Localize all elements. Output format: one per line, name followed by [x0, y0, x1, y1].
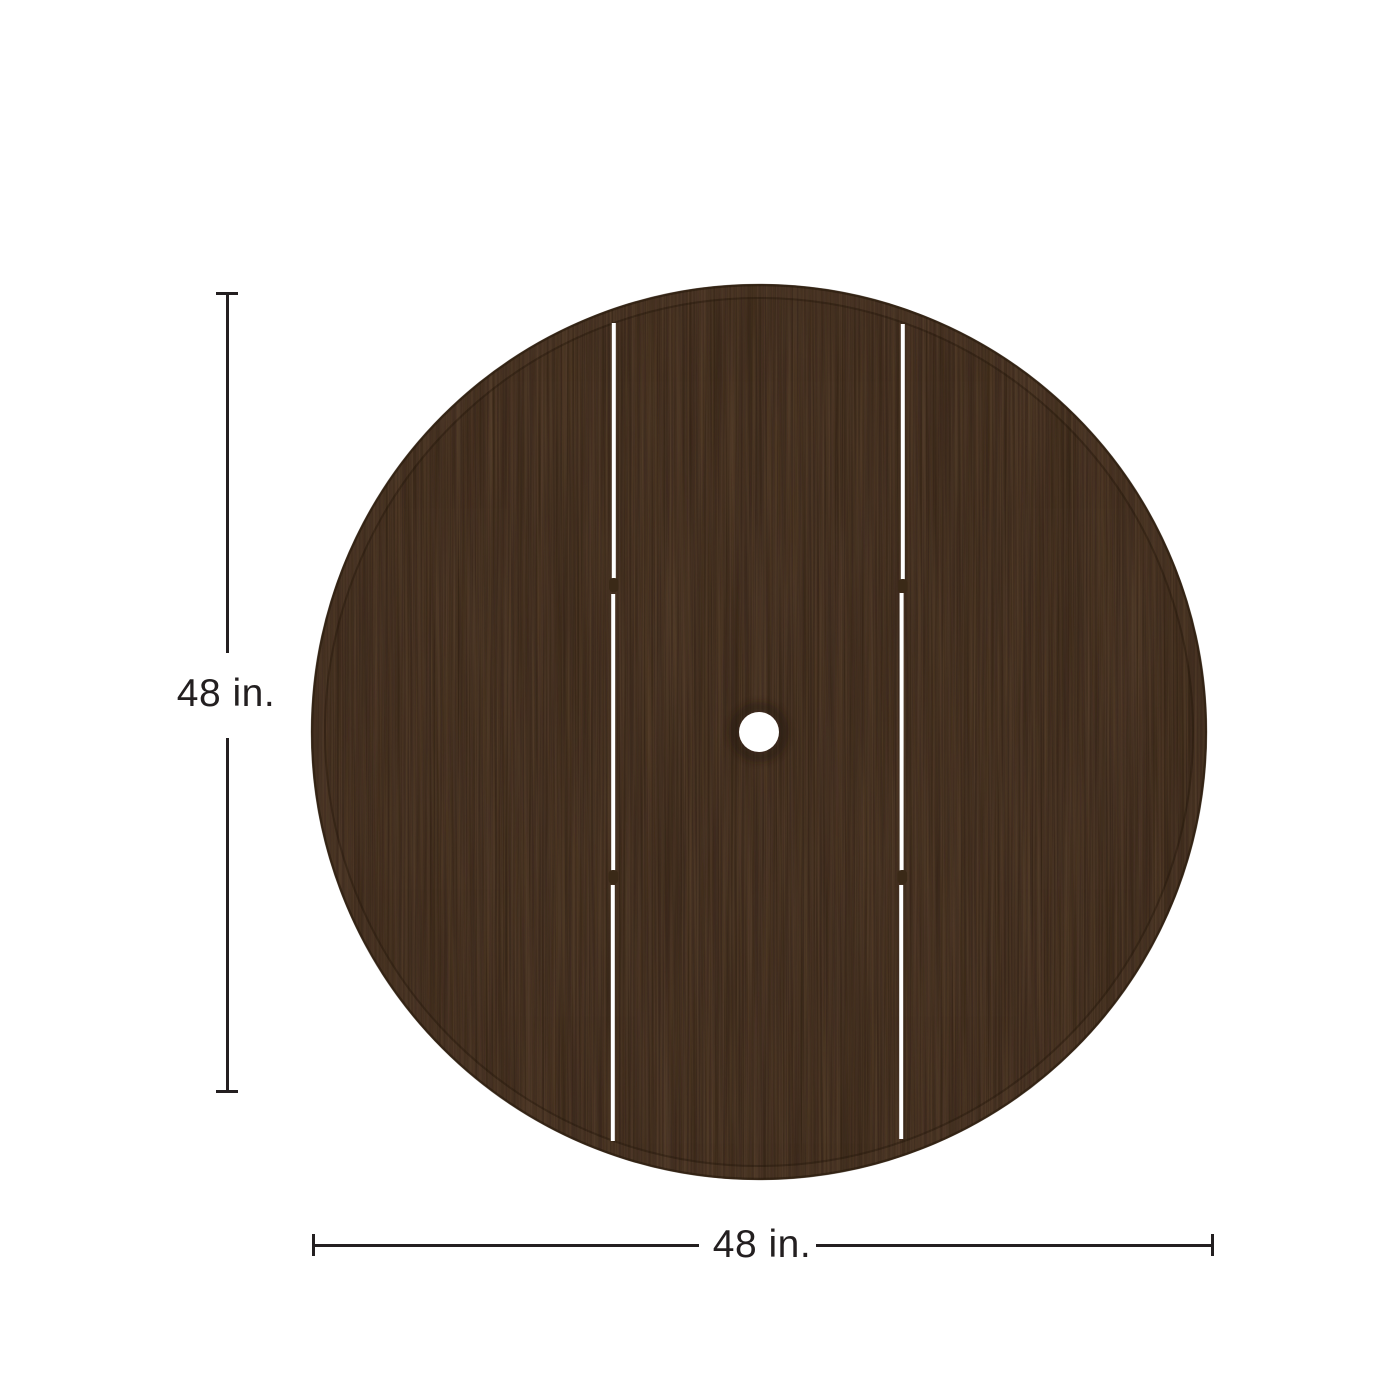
plank-gap-right-upper [901, 324, 905, 581]
plank-gap-left-lower [611, 885, 615, 1141]
plank-joint-notch [898, 579, 908, 593]
width-dimension-line-right [816, 1244, 1213, 1247]
plank-gap-right-lower [899, 885, 903, 1139]
plank-joint-notch [898, 870, 908, 884]
umbrella-hole [734, 707, 784, 757]
plank-joint-notch [609, 578, 619, 592]
height-dimension-label: 48 in. [141, 669, 311, 719]
width-dimension-right-cap [1211, 1234, 1214, 1256]
plank-gap-right-middle [900, 593, 904, 872]
height-dimension-line-upper [226, 292, 229, 653]
table-top-image [310, 283, 1208, 1181]
height-dimension-bottom-cap [216, 1090, 238, 1093]
height-dimension-line-lower [226, 738, 229, 1093]
plank-gap-left-middle [611, 594, 615, 872]
plank-joint-notch [609, 870, 619, 884]
umbrella-hole-opening [739, 712, 779, 752]
width-dimension-line-left [312, 1244, 699, 1247]
plank-gap-left-upper [612, 323, 616, 580]
